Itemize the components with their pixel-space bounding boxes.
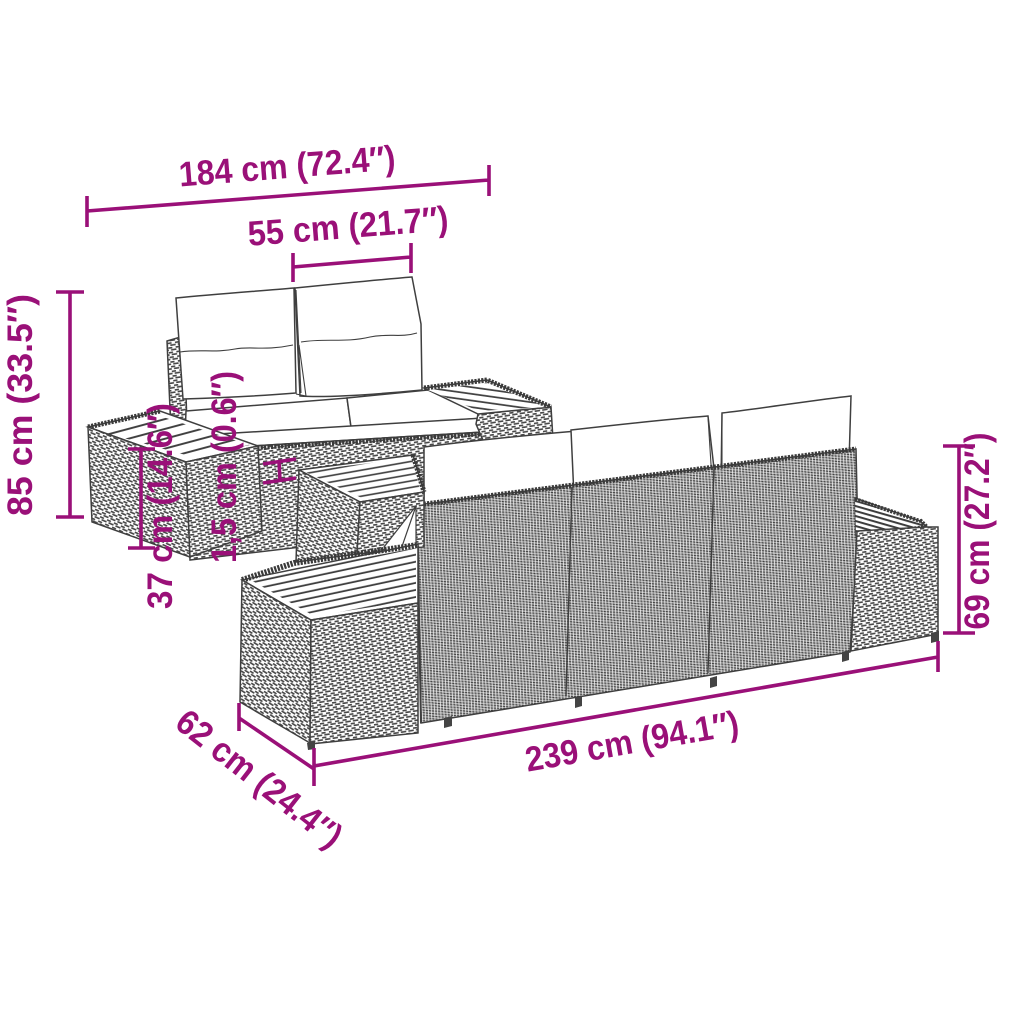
svg-text:37 cm (14.6″): 37 cm (14.6″) (141, 403, 180, 609)
svg-text:85 cm (33.5″): 85 cm (33.5″) (1, 294, 40, 516)
svg-text:69 cm (27.2″): 69 cm (27.2″) (958, 433, 997, 630)
svg-text:1,5 cm (0.6″): 1,5 cm (0.6″) (205, 371, 244, 563)
